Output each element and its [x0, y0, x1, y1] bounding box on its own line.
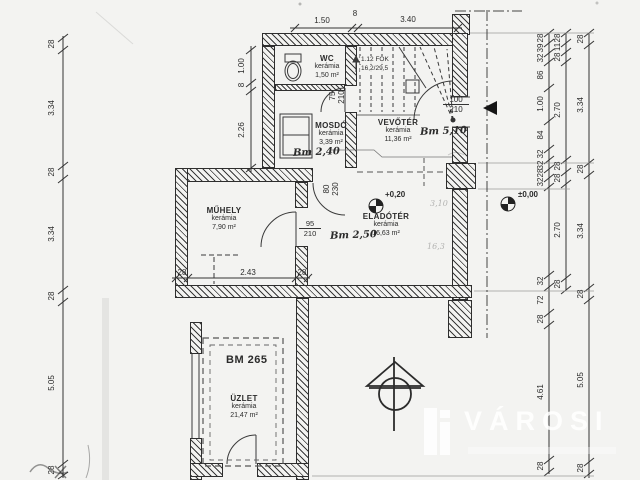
dim-rm-7: 28 — [553, 269, 563, 299]
stair-steps-label: 1.12 FOK — [360, 56, 390, 64]
door-entrance-size: 100 210 — [443, 95, 469, 114]
dim-lo-3: 3.34 — [47, 219, 57, 249]
height-note-vevoter: Bm 5,10 — [420, 125, 467, 138]
dim-rm-6: 2.70 — [553, 215, 563, 245]
dim-ro-5: 5.05 — [576, 365, 586, 395]
dim-ro-1: 3.34 — [576, 90, 586, 120]
watermark-logo-icon — [424, 408, 450, 455]
entrance-arrow-icon — [483, 101, 497, 115]
dim-ri-9: 32 — [536, 167, 546, 197]
room-label-vevoter: VEVŐTÉR kerámia 11,36 m² — [372, 118, 424, 144]
room-label-wc: WC kerámia 1,50 m² — [304, 54, 350, 80]
dim-lo-4: 28 — [47, 281, 57, 311]
watermark-subtitle-bar — [468, 447, 616, 454]
door-muhely-swing — [261, 212, 296, 247]
height-note-mosdo: Bm 2,40 — [293, 146, 340, 159]
dim-ro-4: 28 — [576, 279, 586, 309]
floor-plan-scan: WC kerámia 1,50 m² MOSDÓ kerámia 3,39 m²… — [0, 0, 640, 480]
dim-lo-0: 28 — [47, 29, 57, 59]
dim-rm-3: 2.70 — [553, 95, 563, 125]
dim-rm-2: 28 — [553, 42, 563, 72]
door-wc-height: 210 — [337, 85, 347, 109]
dim-top-2: 3.40 — [394, 15, 422, 25]
dim-ri-14: 28 — [536, 451, 546, 480]
watermark-text: VÁROSI — [464, 406, 610, 437]
dim-ro-0: 28 — [576, 24, 586, 54]
room-label-mosdo: MOSDÓ kerámia 3,39 m² — [308, 121, 354, 147]
dim-mu-1: 2.43 — [235, 268, 261, 278]
door-muhely-size: 95 210 — [299, 219, 321, 238]
dim-top-1: 8 — [350, 9, 360, 19]
dim-rm-5: 28 — [553, 163, 563, 193]
dim-li-2: 2.26 — [237, 115, 247, 145]
dim-ro-6: 28 — [576, 453, 586, 480]
stair-riser-label: 16,2/29,5 — [360, 65, 389, 73]
room-label-muhely: MŰHELY kerámia 7,90 m² — [198, 206, 250, 232]
dim-mu-0: 28 — [175, 268, 189, 278]
dim-ri-4: 1.00 — [536, 89, 546, 119]
dim-lo-6: 28 — [47, 455, 57, 480]
dim-lo-5: 5.05 — [47, 368, 57, 398]
dim-ri-12: 28 — [536, 304, 546, 334]
room-label-uzlet: ÜZLET kerámia 21,47 m² — [218, 394, 270, 420]
level-ground: ±0,00 — [518, 190, 538, 199]
code-bm265: BM 265 — [226, 354, 268, 366]
pencil-note-a: 3,10 — [430, 199, 448, 208]
dim-ri-13: 4.61 — [536, 377, 546, 407]
dim-ro-3: 3.34 — [576, 216, 586, 246]
dim-mu-2: 28 — [295, 268, 309, 278]
dim-lo-1: 3.34 — [47, 93, 57, 123]
dim-top-0: 1.50 — [308, 16, 336, 26]
pencil-note-b: 16,3 — [427, 242, 445, 251]
dim-li-1: 8 — [237, 70, 247, 100]
north-arrow-icon — [367, 357, 423, 431]
dim-ri-3: 86 — [536, 60, 546, 90]
dim-lo-2: 28 — [47, 157, 57, 187]
dim-ro-2: 28 — [576, 154, 586, 184]
height-note-eladoter: Bm 2,50 — [330, 229, 377, 242]
level-eladoter: +0,20 — [385, 190, 405, 199]
door-mosdo-height: 230 — [331, 177, 341, 201]
